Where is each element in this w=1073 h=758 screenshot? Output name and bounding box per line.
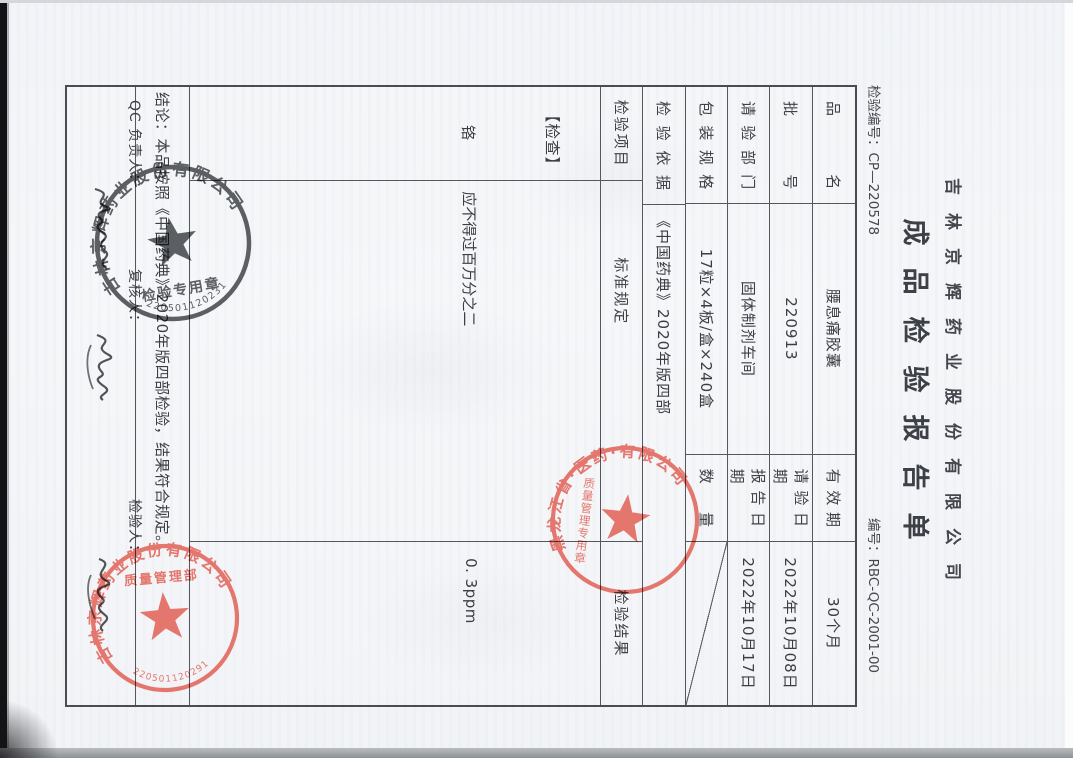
standard-text: 应不得过百万分之二 <box>459 191 480 541</box>
red-seal-bottom-inner-text: 质量管理部 <box>123 567 199 589</box>
value-request-date: 2022年10月08日 <box>770 542 812 705</box>
report-document: 吉林京辉药业股份有限公司 成品检验报告单 检验编号：CP—220578 编号：R… <box>0 0 1073 758</box>
label-package-spec: 包装规格 <box>686 87 727 204</box>
label-test-basis: 检验依据 <box>643 87 685 205</box>
item-chromium: 铬 <box>458 125 479 180</box>
table-content-row: 【检查】 铬 应不得过百万分之二 0. 3ppm <box>189 87 600 705</box>
red-seal-bottom-star-icon <box>138 590 191 641</box>
value-shelf-life: 30个月 <box>813 542 855 705</box>
label-request-date: 请验日期 <box>770 455 812 542</box>
report-title: 成品检验报告单 <box>898 0 937 758</box>
label-product-name: 品名 <box>813 87 855 204</box>
value-request-dept: 固体制剂车间 <box>728 204 769 454</box>
red-seal-bottom-ring-text: 吉林京辉药业股份有限公司 <box>78 533 242 667</box>
label-batch-no: 批号 <box>770 87 812 204</box>
doc-number-label: 编号： <box>865 518 881 559</box>
table-row-product: 品名 腰息痛胶囊 有效期 30个月 <box>812 87 855 705</box>
black-inspection-seal: 吉林京辉药业股份有限公司 2205011202310 检验专用章 <box>73 143 272 342</box>
doc-number-value: RBC-QC-2001-00 <box>865 559 881 674</box>
scan-edge-bottom <box>0 748 1073 758</box>
scan-edge-top <box>0 0 1073 3</box>
header-standard-label: 标准规定 <box>611 257 632 325</box>
scan-edge-left-highlight <box>7 0 9 758</box>
value-report-date: 2022年10月17日 <box>728 542 769 705</box>
exam-number-value: CP—220578 <box>865 153 881 236</box>
value-product-name: 腰息痛胶囊 <box>813 204 855 454</box>
table-row-basis: 检验依据 《中国药典》2020年版四部 <box>642 87 685 705</box>
result-text: 0. 3ppm <box>462 558 480 705</box>
red-seal-middle-star-icon <box>598 491 653 544</box>
scan-edge-left <box>0 0 7 758</box>
table-row-batch: 批号 220913 请验日期 2022年10月08日 <box>769 87 812 705</box>
red-qa-seal-middle: 黑龙江省·医药·有限公司 质量管理专用章 <box>535 430 716 611</box>
table-header-row: 检验项目 标准规定 检验结果 <box>600 87 642 705</box>
red-seal-middle-inner-text: 质量管理专用章 <box>572 477 597 566</box>
black-seal-ring-text: 吉林京辉药业股份有限公司 <box>74 146 260 300</box>
value-batch-no: 220913 <box>770 204 812 454</box>
doc-number: 编号：RBC-QC-2001-00 <box>865 518 885 673</box>
scan-edge-corner-shadow <box>0 700 60 758</box>
svg-text:吉林京辉药业股份有限公司: 吉林京辉药业股份有限公司 <box>74 146 260 300</box>
label-request-dept: 请验部门 <box>728 87 769 204</box>
black-seal-star-icon <box>144 213 201 268</box>
scan-edge-right <box>1065 0 1073 758</box>
label-report-date: 报告日期 <box>728 455 769 542</box>
company-name: 吉林京辉药业股份有限公司 <box>942 0 967 758</box>
svg-text:吉林京辉药业股份有限公司: 吉林京辉药业股份有限公司 <box>78 533 242 667</box>
svg-text:黑龙江省·医药·有限公司: 黑龙江省·医药·有限公司 <box>540 432 695 569</box>
exam-number-label: 检验编号： <box>865 85 881 153</box>
table-row-package: 包装规格 17粒×4板/盒×240盒 数量 <box>685 87 727 705</box>
header-test-item: 检验项目 <box>601 87 642 181</box>
cell-test-item: 【检查】 铬 <box>190 87 600 181</box>
exam-number: 检验编号：CP—220578 <box>865 85 885 235</box>
value-package-spec: 17粒×4板/盒×240盒 <box>686 204 727 454</box>
scanned-report-page: 吉林京辉药业股份有限公司 成品检验报告单 检验编号：CP—220578 编号：R… <box>0 0 1073 758</box>
table-row-department: 请验部门 固体制剂车间 报告日期 2022年10月17日 <box>727 87 769 705</box>
red-company-seal-bottom: 吉林京辉药业股份有限公司 2205011202910 质量管理部 <box>77 530 253 706</box>
label-shelf-life: 有效期 <box>813 455 855 542</box>
section-check: 【检查】 <box>542 107 564 180</box>
red-seal-middle-ring-text: 黑龙江省·医药·有限公司 <box>540 432 695 569</box>
